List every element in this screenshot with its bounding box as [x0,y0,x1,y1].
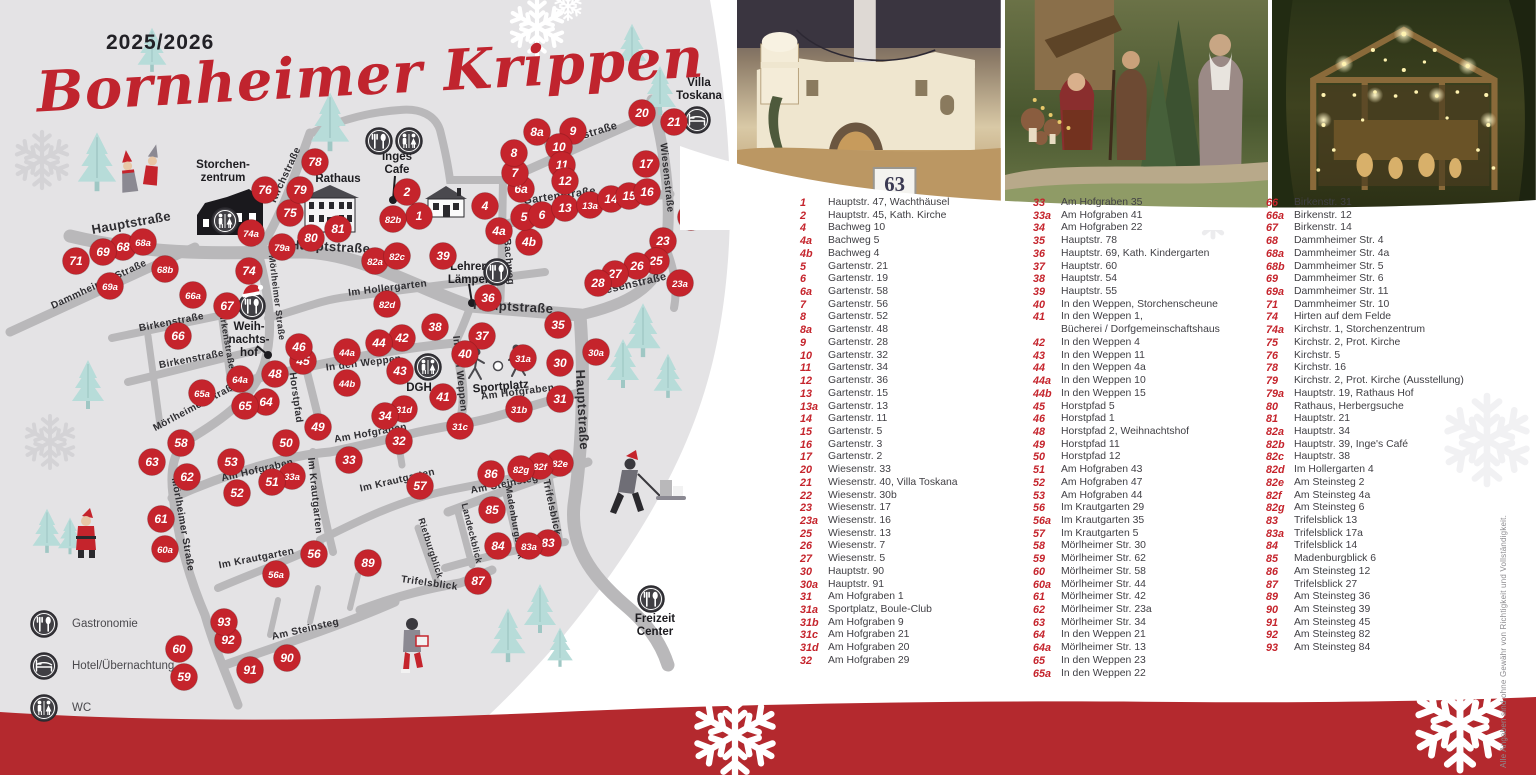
list-item-address: Gartenstr. 2 [828,451,882,464]
list-item-number: 82d [1266,464,1294,477]
list-item-number: 84 [1266,540,1294,553]
list-item-number: 7 [800,299,828,312]
svg-text:30a: 30a [588,348,604,359]
list-item-number: 31b [800,617,828,630]
map-marker-31a: 31a [510,345,537,372]
svg-text:42: 42 [394,331,409,345]
list-item-address: Am Steinsteg 2 [1294,477,1364,490]
svg-text:64: 64 [259,395,273,409]
list-column-1: 1Hauptstr. 47, Wachthäusel2Hauptstr. 45,… [800,197,958,668]
list-item-number: 31a [800,604,828,617]
list-item: 41In den Weppen 1, [1033,311,1220,324]
list-item-number: 50 [1033,451,1061,464]
map-marker-8: 8 [501,140,528,167]
list-item-number: 44b [1033,388,1061,401]
svg-text:82e: 82e [552,459,569,470]
list-item: 30Hauptstr. 90 [800,566,958,579]
list-item: 91Am Steinsteg 45 [1266,617,1464,630]
list-item-address: In den Weppen 15 [1061,388,1146,401]
list-item-address: Hauptstr. 34 [1294,426,1350,439]
svg-text:63: 63 [145,455,159,469]
landmark-label: Storchen-zentrum [196,159,250,184]
svg-text:49: 49 [310,420,325,434]
map-marker-39: 39 [430,243,457,270]
list-item-number: 64 [1033,629,1061,642]
list-item-address: Gartenstr. 13 [828,401,888,414]
svg-text:8: 8 [511,146,518,160]
list-item-number: 79a [1266,388,1294,401]
list-item-address: Trifelsblick 27 [1294,579,1357,592]
svg-text:74a: 74a [243,229,259,240]
list-item-address: Hauptstr. 78 [1061,235,1117,248]
list-item-number: 52 [1033,477,1061,490]
list-item: 49Horstpfad 11 [1033,439,1220,452]
list-item-address: Mörlheimer Str. 42 [1061,591,1146,604]
list-item-number: 92 [1266,629,1294,642]
list-item-number: 33 [1033,197,1061,210]
map-marker-50: 50 [273,430,300,457]
list-item-number: 57 [1033,528,1061,541]
list-item-number: 4 [800,222,828,235]
list-item: 31Am Hofgraben 1 [800,591,958,604]
svg-text:39: 39 [436,249,450,263]
map-marker-12: 12 [552,168,579,195]
svg-text:58: 58 [174,436,188,450]
list-item: 8aGartenstr. 48 [800,324,958,337]
list-item-address: Hauptstr. 54 [1061,273,1117,286]
list-item-address: Am Hofgraben 44 [1061,490,1142,503]
list-item-address: Dammheimer Str. 4 [1294,235,1384,248]
svg-text:31a: 31a [515,354,531,365]
svg-text:40: 40 [457,347,472,361]
map-marker-56a: 56a [263,561,290,588]
svg-text:51: 51 [265,475,279,489]
map-marker-53: 53 [218,449,245,476]
list-item-address: Mörlheimer Str. 23a [1061,604,1152,617]
list-item: 46Horstpfad 1 [1033,413,1220,426]
list-item-number: 82f [1266,490,1294,503]
list-item: 66aBirkenstr. 12 [1266,210,1464,223]
map-marker-82d: 82d [374,291,401,318]
list-item-address: Horstpfad 2, Weihnachtshof [1061,426,1189,439]
svg-text:69a: 69a [102,282,118,293]
list-item-address: Wiesenstr. 17 [828,502,891,515]
list-item-number: 93 [1266,642,1294,655]
legend-item-wc: WC [28,692,174,724]
list-item-number: 8a [800,324,828,337]
svg-text:33: 33 [342,453,356,467]
list-item-number: 63 [1033,617,1061,630]
map-marker-78: 78 [302,149,329,176]
svg-text:9: 9 [570,124,577,138]
map-marker-59: 59 [171,664,198,691]
svg-text:4a: 4a [491,224,506,238]
list-item-address: Gartenstr. 11 [828,413,887,426]
list-item: 20Wiesenstr. 33 [800,464,958,477]
map-marker-17: 17 [633,151,660,178]
svg-text:43: 43 [392,364,407,378]
list-item-number: 25 [800,528,828,541]
svg-text:31b: 31b [511,405,528,416]
map-marker-4: 4 [472,193,499,220]
map-marker-1: 1 [406,203,433,230]
list-item-address: Hauptstr. 91 [828,579,884,592]
svg-text:64a: 64a [232,375,248,386]
svg-text:82f: 82f [533,462,548,473]
list-item-number: 34 [1033,222,1061,235]
svg-text:26: 26 [629,259,644,273]
svg-text:22: 22 [683,210,698,224]
list-item-address: Gartenstr. 56 [828,299,888,312]
list-item-number: 41 [1033,311,1061,324]
list-item-address: Mörlheimer Str. 13 [1061,642,1146,655]
map-marker-36: 36 [475,285,502,312]
list-item: 87Trifelsblick 27 [1266,579,1464,592]
list-item: 92Am Steinsteg 82 [1266,629,1464,642]
svg-text:82b: 82b [385,215,402,226]
list-item: 68aDammheimer Str. 4a [1266,248,1464,261]
list-item-number: 62 [1033,604,1061,617]
list-item: 85Madenburgblick 6 [1266,553,1464,566]
list-item-number: 89 [1266,591,1294,604]
list-item-address: Gartenstr. 19 [828,273,888,286]
list-item-address: Gartenstr. 28 [828,337,888,350]
house-number-plate: 63 [884,172,905,196]
list-item-number: 74 [1266,311,1294,324]
list-item-number: 15 [800,426,828,439]
list-item-number: 48 [1033,426,1061,439]
list-item: Bücherei / Dorfgemeinschaftshaus [1033,324,1220,337]
svg-text:60a: 60a [157,545,173,556]
svg-text:93: 93 [217,615,231,629]
list-item-number: 83a [1266,528,1294,541]
list-item-address: Bachweg 5 [828,235,879,248]
list-item-number: 30a [800,579,828,592]
list-item-address: Bachweg 4 [828,248,879,261]
svg-text:65a: 65a [194,389,210,400]
list-item-address: Hauptstr. 19, Rathaus Hof [1294,388,1414,401]
gastro-icon [28,608,60,640]
list-item-number: 81 [1266,413,1294,426]
list-item-number: 91 [1266,617,1294,630]
svg-text:5: 5 [521,210,528,224]
disclaimer-note: Alle Angaben sind ohne Gewähr von Richti… [1499,515,1508,768]
list-item: 82cHauptstr. 38 [1266,451,1464,464]
list-item-address: Gartenstr. 34 [828,362,888,375]
list-item-number: 60 [1033,566,1061,579]
list-item-address: Horstpfad 1 [1061,413,1115,426]
list-item-address: Birkenstr. 14 [1294,222,1352,235]
list-item-number: 23 [800,502,828,515]
list-item-address: Wiesenstr. 7 [828,540,885,553]
list-item: 68Dammheimer Str. 4 [1266,235,1464,248]
map-marker-61: 61 [148,506,175,533]
list-item-number: 11 [800,362,828,375]
list-item: 43In den Weppen 11 [1033,350,1220,363]
list-item-number: 36 [1033,248,1061,261]
list-item-address: Hauptstr. 55 [1061,286,1117,299]
list-item: 82dIm Hollergarten 4 [1266,464,1464,477]
map-marker-44a: 44a [334,339,361,366]
svg-text:83: 83 [541,536,555,550]
list-item: 64aMörlheimer Str. 13 [1033,642,1220,655]
map-marker-31b: 31b [506,396,533,423]
list-item-number: 13 [800,388,828,401]
map-marker-23a: 23a [667,270,694,297]
list-item-address: Am Hofgraben 1 [828,591,904,604]
map-marker-79: 79 [287,177,314,204]
list-item-address: Wiesenstr. 16 [828,515,891,528]
list-item-number: 37 [1033,261,1061,274]
map-marker-82b: 82b [380,206,407,233]
map-marker-86: 86 [478,461,505,488]
list-item-number: 51 [1033,464,1061,477]
legend-item-hotel: Hotel/Übernachtung [28,650,174,682]
list-item-address: Trifelsblick 14 [1294,540,1357,553]
list-item-number: 33a [1033,210,1061,223]
list-item: 38Hauptstr. 54 [1033,273,1220,286]
map-marker-2: 2 [394,179,421,206]
list-item-number: 87 [1266,579,1294,592]
svg-text:37: 37 [475,329,490,343]
list-item-number: 82b [1266,439,1294,452]
svg-text:8a: 8a [530,125,544,139]
map-marker-30a: 30a [583,339,610,366]
list-item: 5Gartenstr. 21 [800,261,958,274]
list-item: 45Horstpfad 5 [1033,401,1220,414]
svg-text:31: 31 [553,392,567,406]
list-item-address: Rathaus, Herbergsuche [1294,401,1404,414]
svg-text:82a: 82a [367,257,383,268]
list-item: 26Wiesenstr. 7 [800,540,958,553]
svg-text:87: 87 [471,574,486,588]
list-item: 82fAm Steinsteg 4a [1266,490,1464,503]
map-marker-85: 85 [479,497,506,524]
list-item-number: 80 [1266,401,1294,414]
map-marker-42: 42 [389,325,416,352]
list-item-number: 83 [1266,515,1294,528]
svg-text:84: 84 [491,539,505,553]
list-item-address: Am Steinsteg 36 [1294,591,1370,604]
map-marker-71: 71 [63,248,90,275]
list-item-number: 35 [1033,235,1061,248]
svg-text:79: 79 [293,183,307,197]
list-item-number: 6 [800,273,828,286]
svg-text:31c: 31c [452,422,469,433]
map-marker-74a: 74a [238,220,265,247]
list-item: 83Trifelsblick 13 [1266,515,1464,528]
svg-text:34: 34 [378,409,392,423]
svg-text:23a: 23a [671,279,688,290]
list-item: 44bIn den Weppen 15 [1033,388,1220,401]
list-item-number: 78 [1266,362,1294,375]
list-item-address: Gartenstr. 52 [828,311,888,324]
svg-text:35: 35 [551,318,565,332]
list-column-3: 66Birkenstr. 3166aBirkenstr. 1267Birkens… [1266,197,1464,655]
svg-text:74: 74 [242,264,256,278]
list-item-number: 79 [1266,375,1294,388]
map-marker-4b: 4b [516,229,543,256]
list-item: 21Wiesenstr. 40, Villa Toskana [800,477,958,490]
list-item-number: 85 [1266,553,1294,566]
list-item: 6aGartenstr. 58 [800,286,958,299]
list-item: 75Kirchstr. 2, Prot. Kirche [1266,337,1464,350]
map-marker-44b: 44b [334,370,361,397]
map-marker-67: 67 [214,293,241,320]
list-item: 64In den Weppen 21 [1033,629,1220,642]
list-item-address: Hauptstr. 38 [1294,451,1350,464]
list-item-address: Am Steinsteg 45 [1294,617,1370,630]
svg-text:61: 61 [154,512,168,526]
list-item-address: Mörlheimer Str. 34 [1061,617,1146,630]
list-item-number: 65 [1033,655,1061,668]
list-item-number: 40 [1033,299,1061,312]
list-item-number: 65a [1033,668,1061,681]
list-item-address: Wiesenstr. 5 [828,553,885,566]
svg-text:13: 13 [558,201,572,215]
list-item: 13aGartenstr. 13 [800,401,958,414]
list-item-number: 26 [800,540,828,553]
map-marker-13: 13 [552,195,579,222]
svg-text:66a: 66a [185,291,201,302]
list-item-number: 44 [1033,362,1061,375]
list-item-address: Horstpfad 12 [1061,451,1121,464]
list-item: 17Gartenstr. 2 [800,451,958,464]
list-item-address: Dammheimer Str. 6 [1294,273,1384,286]
svg-text:67: 67 [220,299,235,313]
list-item-address: Hauptstr. 21 [1294,413,1350,426]
list-item-number: 66a [1266,210,1294,223]
landmark-label: Rathaus [315,173,360,185]
list-item-address: Dammheimer Str. 10 [1294,299,1389,312]
list-item-address: Hauptstr. 45, Kath. Kirche [828,210,946,223]
list-item: 22Wiesenstr. 30b [800,490,958,503]
list-item-address: Am Hofgraben 29 [828,655,909,668]
svg-text:23: 23 [655,234,670,248]
list-item: 69aDammheimer Str. 11 [1266,286,1464,299]
svg-text:44a: 44a [338,348,355,359]
list-item-number: 10 [800,350,828,363]
list-item-address: Kirchstr. 16 [1294,362,1346,375]
svg-text:60: 60 [172,642,186,656]
list-item: 60Mörlheimer Str. 58 [1033,566,1220,579]
list-item-address: Wiesenstr. 13 [828,528,891,541]
list-item-number: 82c [1266,451,1294,464]
map-marker-82c: 82c [384,243,411,270]
map-marker-69: 69 [90,239,117,266]
list-item: 71Dammheimer Str. 10 [1266,299,1464,312]
list-item-address: Gartenstr. 48 [828,324,888,337]
list-item: 42In den Weppen 4 [1033,337,1220,350]
list-item-number: 53 [1033,490,1061,503]
hotel-icon [28,650,60,682]
map-marker-68a: 68a [130,229,157,256]
svg-text:50: 50 [279,436,293,450]
svg-text:44: 44 [371,336,386,350]
list-item-address: Mörlheimer Str. 58 [1061,566,1146,579]
svg-text:30: 30 [553,356,567,370]
list-item-address: In den Weppen 11 [1061,350,1145,363]
list-item-address: Bachweg 10 [828,222,885,235]
svg-text:66: 66 [171,329,185,343]
map-marker-68b: 68b [152,256,179,283]
list-item-number: 45 [1033,401,1061,414]
list-item-address: Mörlheimer Str. 44 [1061,579,1146,592]
svg-text:82g: 82g [513,465,530,476]
list-item: 90Am Steinsteg 39 [1266,604,1464,617]
map-marker-79a: 79a [269,234,296,261]
svg-text:17: 17 [639,157,654,171]
list-item: 74Hirten auf dem Felde [1266,311,1464,324]
list-item: 82gAm Steinsteg 6 [1266,502,1464,515]
map-marker-84: 84 [485,533,512,560]
list-item-address: Im Krautgarten 35 [1061,515,1144,528]
list-item: 2Hauptstr. 45, Kath. Kirche [800,210,958,223]
map-marker-76: 76 [252,177,279,204]
list-item: 84Trifelsblick 14 [1266,540,1464,553]
gastro-icon [366,128,392,154]
list-item: 32Am Hofgraben 29 [800,655,958,668]
svg-text:46: 46 [291,340,306,354]
svg-text:85: 85 [485,503,499,517]
list-item: 68bDammheimer Str. 5 [1266,261,1464,274]
map-marker-34: 34 [372,403,399,430]
list-item-address: Am Hofgraben 43 [1061,464,1142,477]
list-item-number: 43 [1033,350,1061,363]
list-item-address: Wiesenstr. 33 [828,464,891,477]
svg-text:56a: 56a [268,570,284,581]
list-item-address: Hauptstr. 60 [1061,261,1117,274]
svg-text:89: 89 [361,556,375,570]
map-marker-74: 74 [236,258,263,285]
list-item-address: Am Hofgraben 9 [828,617,904,630]
svg-text:82d: 82d [379,300,396,311]
list-item-number: 68a [1266,248,1294,261]
list-item: 82eAm Steinsteg 2 [1266,477,1464,490]
list-item: 31dAm Hofgraben 20 [800,642,958,655]
list-item-address: Gartenstr. 3 [828,439,882,452]
map-marker-38: 38 [422,314,449,341]
list-item-address: In den Weppen 10 [1061,375,1146,388]
list-item: 51Am Hofgraben 43 [1033,464,1220,477]
svg-text:41: 41 [435,390,450,404]
list-item-number: 16 [800,439,828,452]
list-item-address: Dammheimer Str. 5 [1294,261,1384,274]
list-item-address: Gartenstr. 15 [828,388,888,401]
list-item-number: 8 [800,311,828,324]
list-item: 23Wiesenstr. 17 [800,502,958,515]
list-item: 33aAm Hofgraben 41 [1033,210,1220,223]
legend-item-gastro: Gastronomie [28,608,174,640]
photo-garden-nativity [1005,0,1269,212]
list-item-address: Am Hofgraben 20 [828,642,909,655]
list-item: 4aBachweg 5 [800,235,958,248]
list-item: 78Kirchstr. 16 [1266,362,1464,375]
list-item: 76Kirchstr. 5 [1266,350,1464,363]
photo-lighted-stable [1272,0,1536,212]
svg-text:68: 68 [116,240,130,254]
list-item-address: Hauptstr. 39, Inge's Café [1294,439,1408,452]
list-item-address: Bücherei / Dorfgemeinschaftshaus [1061,324,1220,337]
list-item-number: 56 [1033,502,1061,515]
list-item: 61Mörlheimer Str. 42 [1033,591,1220,604]
list-item-number: 75 [1266,337,1294,350]
list-item-address: Am Hofgraben 35 [1061,197,1142,210]
list-column-2: 33Am Hofgraben 3533aAm Hofgraben 4134Am … [1033,197,1220,680]
svg-text:83a: 83a [521,542,537,553]
list-item-address: Am Steinsteg 82 [1294,629,1370,642]
list-item-number: 58 [1033,540,1061,553]
